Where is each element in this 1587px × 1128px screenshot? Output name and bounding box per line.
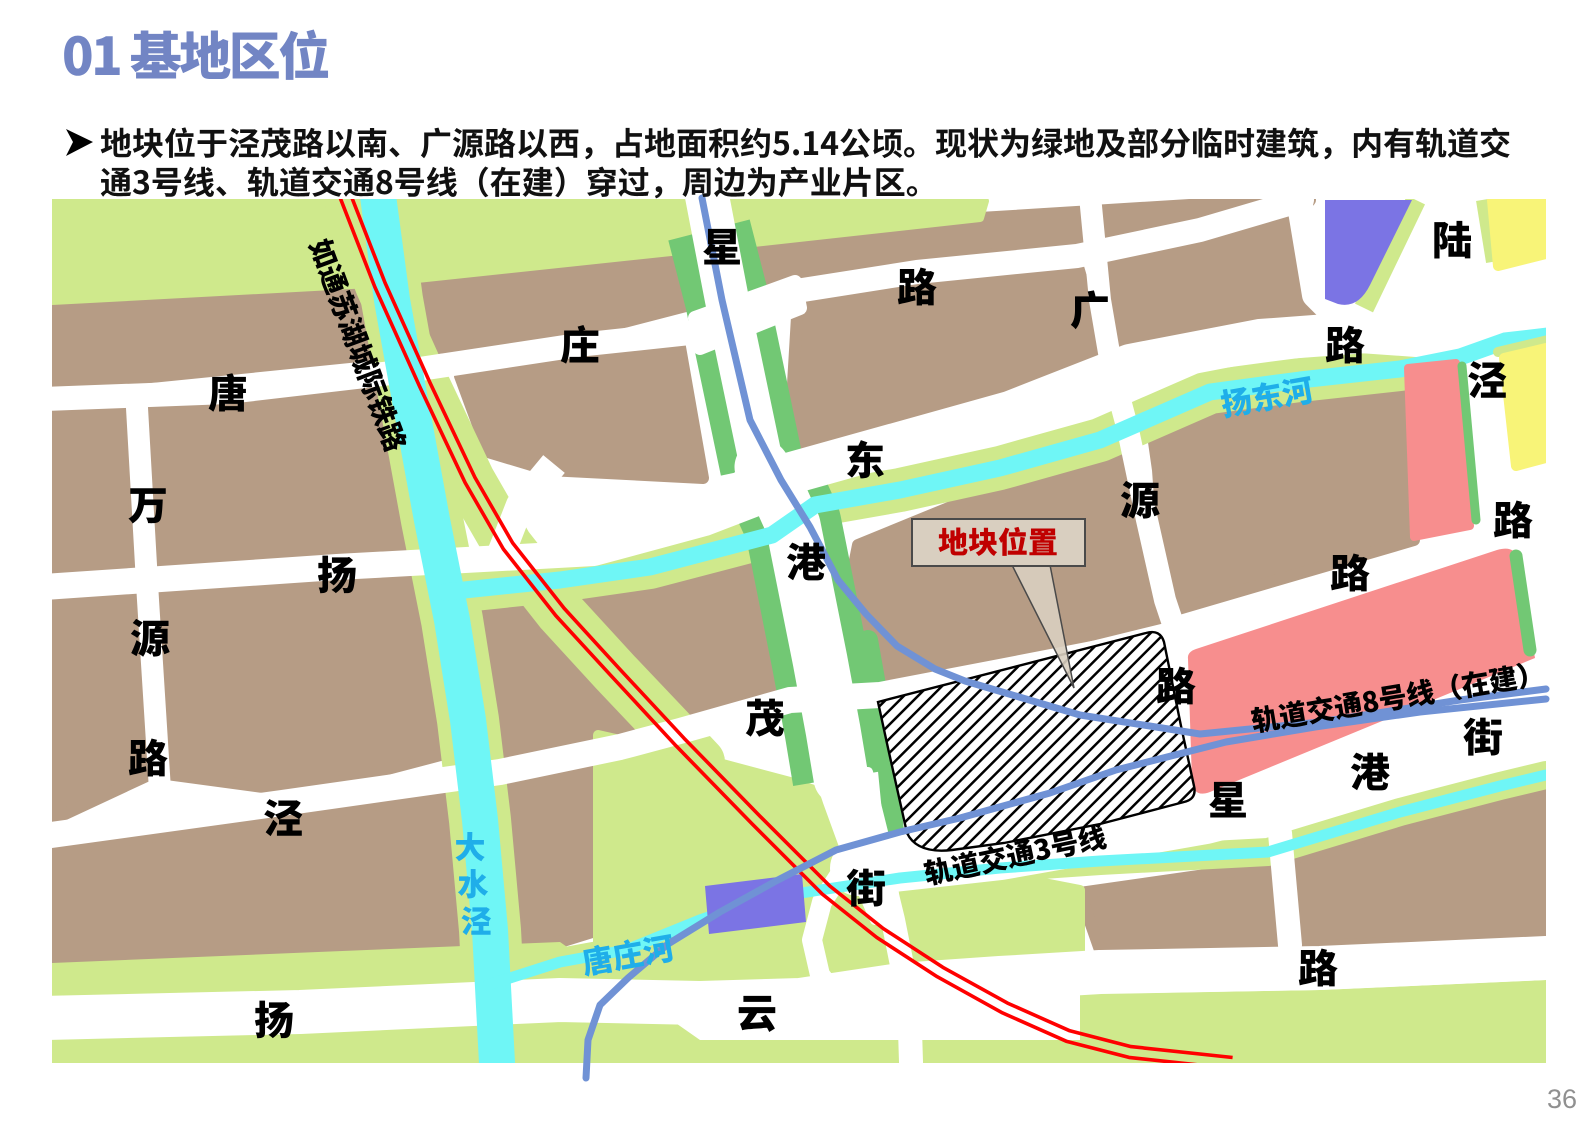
svg-text:36: 36 (1547, 1084, 1577, 1114)
